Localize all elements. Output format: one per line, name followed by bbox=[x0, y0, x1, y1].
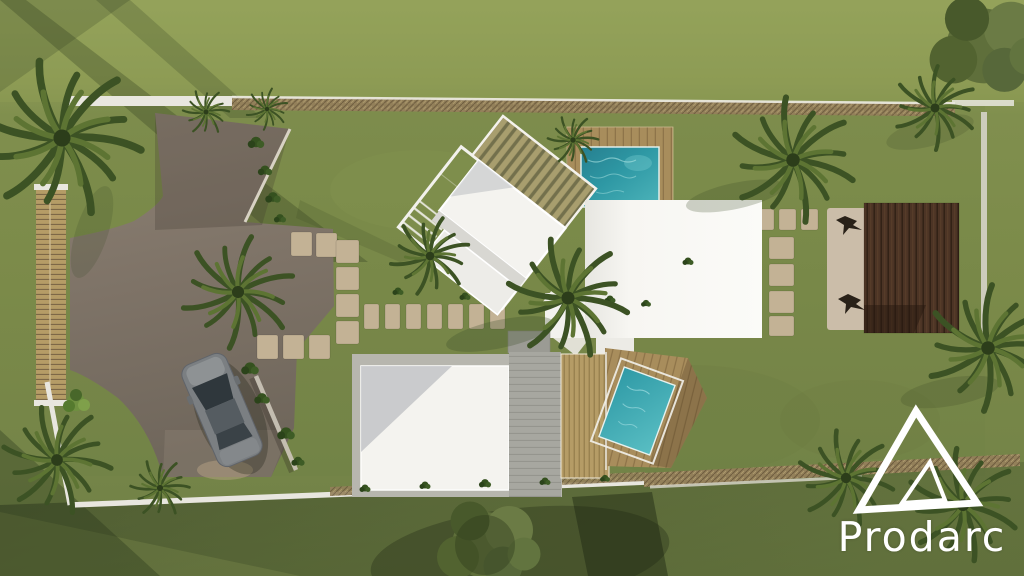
big-white-roof bbox=[585, 200, 762, 338]
west-bamboo-fence bbox=[36, 188, 66, 404]
scene-render bbox=[0, 0, 1024, 576]
aerial-site-render: Prodarc bbox=[0, 0, 1024, 576]
prodarc-brand-text: Prodarc bbox=[820, 517, 1024, 558]
bamboo-pergola bbox=[561, 354, 609, 478]
concrete-walkway bbox=[509, 352, 561, 497]
